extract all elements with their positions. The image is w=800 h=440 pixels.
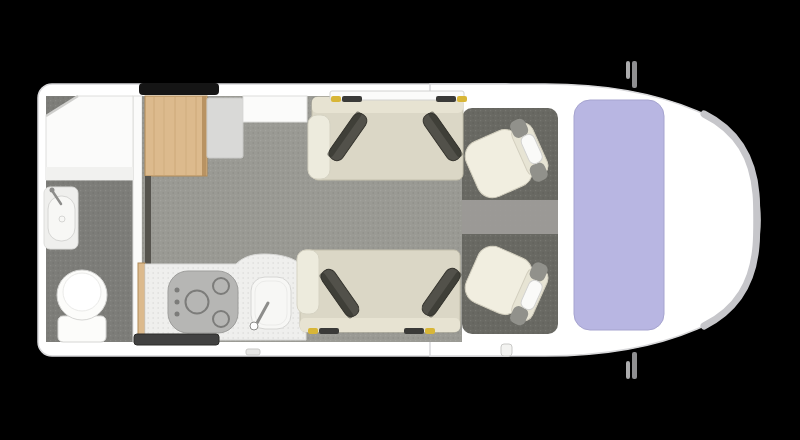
shower (46, 96, 133, 180)
seatbelt-strap (342, 96, 362, 102)
seatbelt-buckle (331, 96, 341, 102)
table-pedestal (145, 176, 151, 264)
side-mirror-top (626, 61, 637, 88)
travel-bench-bottom (297, 250, 463, 332)
cab-floor-strip (462, 200, 558, 234)
seatbelt-buckle (425, 328, 435, 334)
side-mirror-bottom (626, 352, 637, 379)
motorhome-floorplan (0, 0, 800, 440)
mirror-arm (626, 61, 630, 79)
bench-armrest (297, 250, 319, 314)
seatbelt-strap (436, 96, 456, 102)
table-edge (202, 96, 206, 176)
entry-step (246, 349, 260, 355)
mirror-stem (632, 352, 637, 379)
seatbelt-buckle (457, 96, 467, 102)
bathroom-sink (44, 187, 78, 249)
windshield (574, 100, 664, 330)
seatbelt-buckle (308, 328, 318, 334)
floorplan-canvas (0, 0, 800, 440)
bathroom-faucet-knob (50, 188, 55, 193)
side-cabinet (207, 98, 243, 158)
hob-knob (175, 300, 180, 305)
rear-window (139, 83, 219, 95)
interior (44, 83, 558, 356)
mirror-stem (632, 61, 637, 88)
toilet (57, 270, 107, 342)
overhead-cupboard (243, 96, 307, 122)
kitchen-side-panel (138, 263, 145, 340)
shower-step (46, 167, 133, 180)
toilet-seat (63, 273, 101, 311)
seatbelt-strap (404, 328, 424, 334)
hob-knob (175, 312, 180, 317)
hob-knob (175, 288, 180, 293)
kitchen-faucet-knob (250, 322, 258, 330)
travel-bench-top (308, 97, 464, 180)
seatbelt-strap (319, 328, 339, 334)
kitchen-window (134, 334, 219, 345)
mirror-arm (626, 361, 630, 379)
kitchen (138, 254, 306, 340)
cab-door-step (501, 344, 512, 356)
bench-armrest (308, 115, 330, 179)
